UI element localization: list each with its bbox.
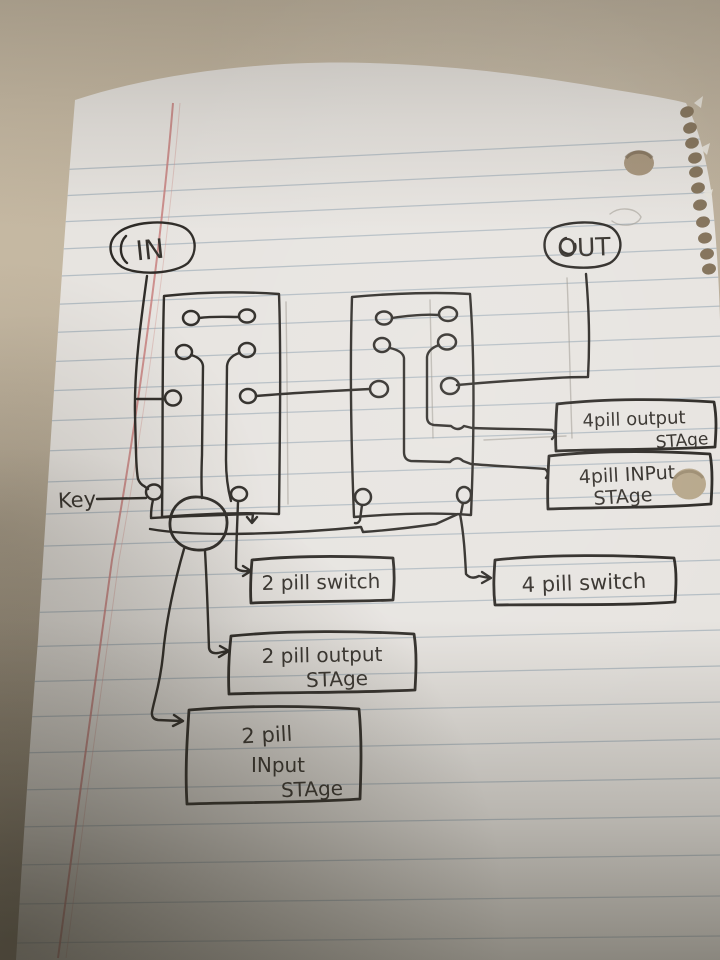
binder-hole-top (624, 151, 654, 176)
notebook-diagram-photo: IN OUT Key 2 pill switch 4 pill switch 2… (0, 0, 720, 960)
input2-label-line3: STAge (281, 776, 344, 802)
switch2-label: 2 pill switch (261, 569, 380, 595)
input2-label-line2: INput (251, 753, 305, 777)
binder-hole-bottom (672, 469, 706, 500)
input4-label-line2: STAge (593, 484, 653, 510)
output2-label-line2: STAge (306, 666, 369, 692)
input2-label-line1: 2 pill (241, 722, 293, 749)
output4-label-line1: 4pill output (582, 407, 686, 432)
out-label: OUT (557, 232, 612, 263)
in-label: IN (134, 234, 165, 268)
output4-label-line2: STAge (655, 429, 709, 453)
wire-key (97, 498, 146, 499)
switch4-label: 4 pill switch (521, 569, 646, 597)
output2-label-line1b: 2 pill output (261, 642, 382, 668)
wire-top-jumper (199, 317, 239, 318)
diagram-artwork: IN OUT Key 2 pill switch 4 pill switch 2… (0, 0, 720, 960)
key-label: Key (57, 487, 96, 513)
